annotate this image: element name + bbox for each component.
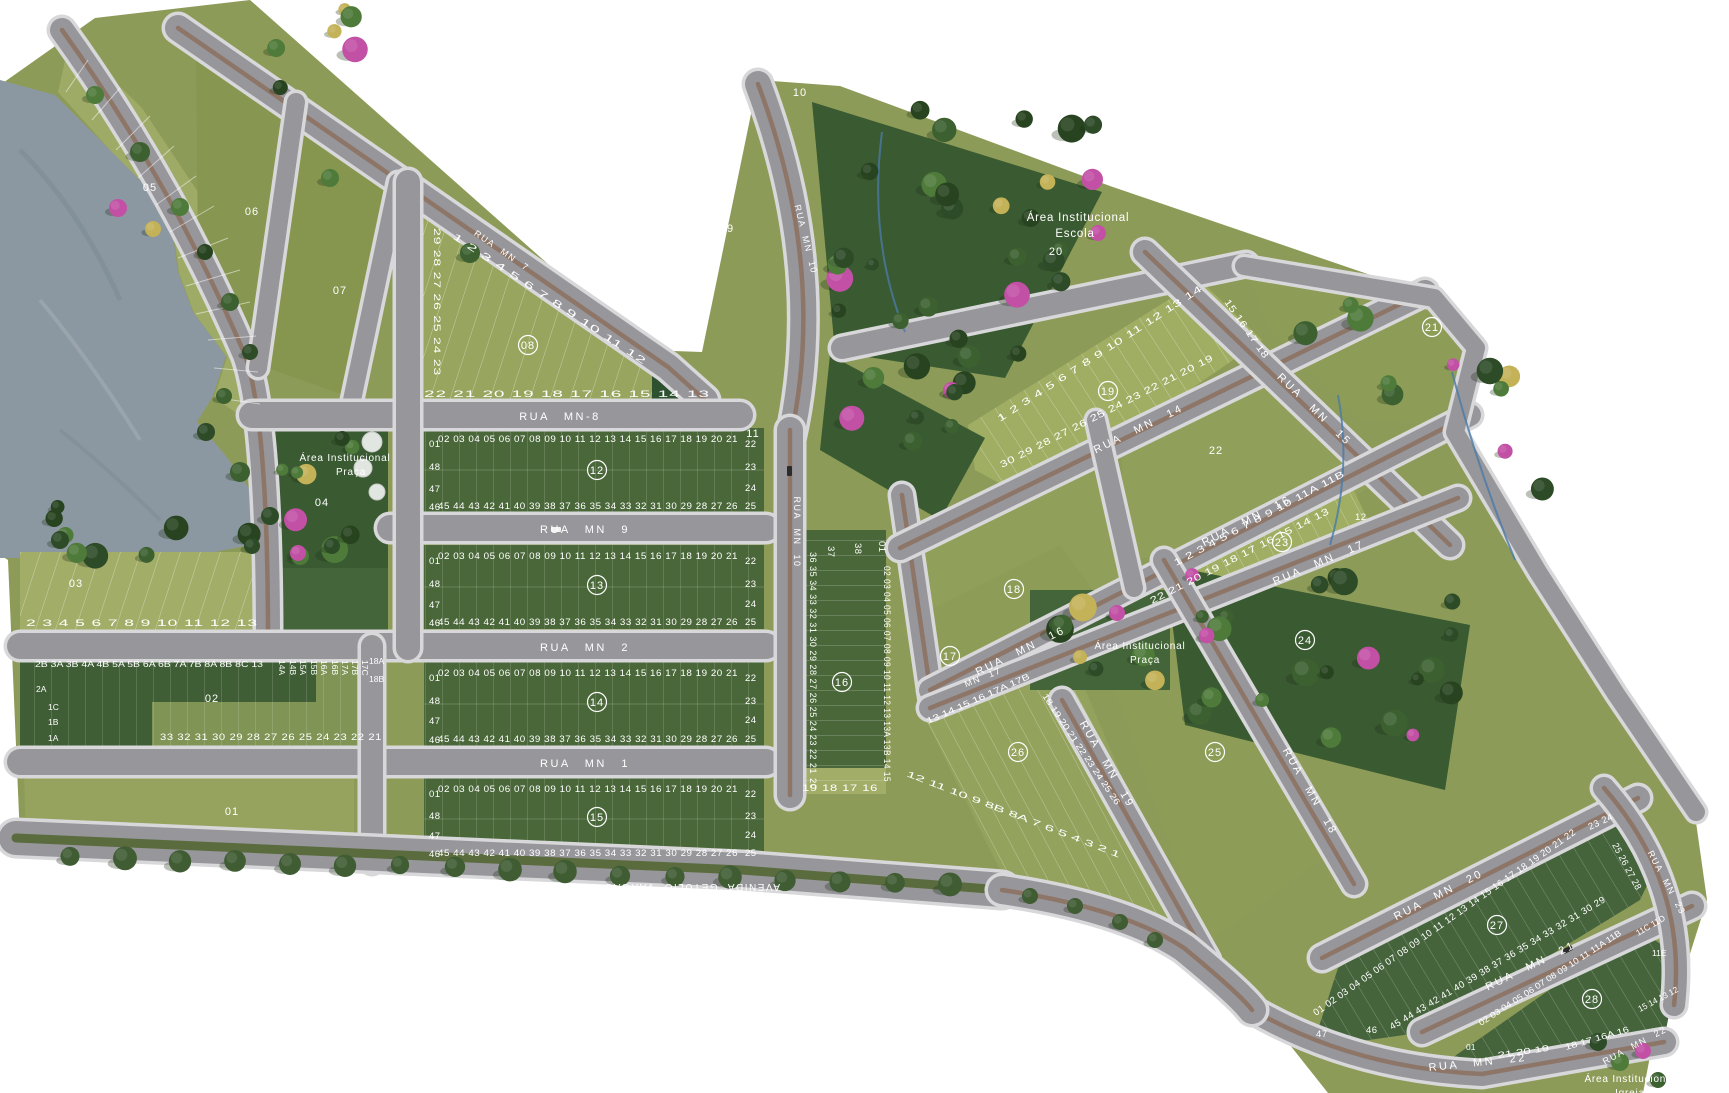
block-13-lots-bottom: 45 44 43 42 41 40 39 38 37 36 35 34 33 3… bbox=[438, 617, 738, 628]
block-12-lot-23: 23 bbox=[745, 462, 757, 473]
block-12-lot-25: 25 bbox=[745, 501, 757, 512]
block-label-10: 10 bbox=[793, 87, 807, 99]
svg-text:21: 21 bbox=[1425, 322, 1439, 334]
block-15-lot-46: 46 bbox=[429, 849, 441, 860]
block-12-lot-47: 47 bbox=[429, 484, 441, 495]
block-14-lot-24: 24 bbox=[745, 715, 757, 726]
block-12-lot-01: 01 bbox=[429, 439, 441, 450]
block-02-lot-18a: 18A bbox=[369, 656, 384, 666]
street-label-avenida-getulio-vargas: AVENIDA GETULIO VARGAS bbox=[604, 881, 780, 892]
svg-text:24: 24 bbox=[1298, 635, 1312, 647]
block-label-09: 09 bbox=[720, 223, 734, 235]
block-28-lot-01: 01 bbox=[1466, 1042, 1476, 1052]
block-label-05: 05 bbox=[143, 182, 157, 194]
block-label-03: 03 bbox=[69, 578, 83, 590]
block-02-lot-16b: 16B bbox=[330, 660, 340, 675]
block-16-lots-left: 36 35 34 33 32 31 30 29 28 27 26 25 24 2… bbox=[807, 552, 818, 774]
block-16-lots-right: 02 03 04 05 06 07 08 09 10 11 12 13 13A … bbox=[881, 566, 892, 782]
block-15-lot-47: 47 bbox=[429, 831, 441, 842]
block-02-lot-16a: 16A bbox=[319, 660, 329, 675]
block-14-lot-01: 01 bbox=[429, 673, 441, 684]
block-13-lots-top: 02 03 04 05 06 07 08 09 10 11 12 13 14 1… bbox=[438, 551, 738, 562]
block-13-lot-46: 46 bbox=[429, 618, 441, 629]
street-label-rua-mn9: RUA MN 9 bbox=[540, 524, 630, 536]
street-label-rua-mn1: RUA MN 1 bbox=[540, 758, 630, 770]
block-14-lots-bottom: 45 44 43 42 41 40 39 38 37 36 35 34 33 3… bbox=[438, 734, 738, 745]
block-14-lot-23: 23 bbox=[745, 696, 757, 707]
block-02-lot-1a: 1A bbox=[48, 733, 59, 743]
block-14-lots-top: 02 03 04 05 06 07 08 09 10 11 12 13 14 1… bbox=[438, 668, 738, 679]
block-02-lot-1c: 1C bbox=[48, 702, 59, 712]
block-28-lot-11e: 11E bbox=[1652, 948, 1667, 958]
block-27-lot-46: 46 bbox=[1366, 1025, 1378, 1036]
svg-text:17: 17 bbox=[943, 651, 957, 663]
car-icon bbox=[787, 466, 792, 476]
block-13-lot-24: 24 bbox=[745, 599, 757, 610]
label-area-institucional-praca-left-line1: Área Institucional bbox=[299, 451, 390, 464]
block-13-lot-23: 23 bbox=[745, 579, 757, 590]
block-14-lot-47: 47 bbox=[429, 716, 441, 727]
block-13-lot-22: 22 bbox=[745, 556, 757, 567]
svg-text:18: 18 bbox=[1007, 584, 1021, 596]
label-area-institucional-igreja-line2: Igreja bbox=[1615, 1088, 1645, 1093]
block-15-lot-24: 24 bbox=[745, 830, 757, 841]
svg-text:13: 13 bbox=[590, 580, 604, 592]
block-16-lots-bottom: 19 18 17 16 bbox=[802, 783, 878, 794]
block-02-lot-17b: 17B bbox=[350, 660, 360, 675]
block-02-lot-15b: 15B bbox=[309, 660, 319, 675]
street-label-avenida-frag-getulio: GETULIO VARGA bbox=[182, 881, 287, 892]
block-12-lot-24: 24 bbox=[745, 483, 757, 494]
block-12-lot-46: 46 bbox=[429, 502, 441, 513]
street-label-rua-mn2: RUA MN 2 bbox=[540, 642, 630, 654]
svg-text:14: 14 bbox=[590, 697, 604, 709]
block-23-lot-12: 12 bbox=[1355, 512, 1367, 523]
block-08-lots-bottom: 22 21 20 19 18 17 16 15 14 13 bbox=[424, 389, 710, 400]
svg-text:12: 12 bbox=[590, 465, 604, 477]
svg-text:25: 25 bbox=[1208, 747, 1222, 759]
block-label-01: 01 bbox=[225, 806, 239, 818]
site-plan-map: RUA MN 7 RUA MN-8 RUA MN 9 RUA MN 2 RUA … bbox=[0, 0, 1729, 1093]
block-16-lot-01: 01 bbox=[876, 541, 887, 553]
block-label-06: 06 bbox=[245, 206, 259, 218]
block-label-22: 22 bbox=[1209, 445, 1223, 457]
block-label-02: 02 bbox=[205, 693, 219, 705]
block-label-07: 07 bbox=[333, 285, 347, 297]
block-02-lots-top: 2B 3A 3B 4A 4B 5A 5B 6A 6B 7A 7B 8A 8B 8… bbox=[35, 659, 263, 669]
block-02-lot-2a: 2A bbox=[36, 684, 47, 694]
label-area-institucional-escola-line1: Área Institucional bbox=[1027, 211, 1130, 224]
svg-text:28: 28 bbox=[1585, 994, 1599, 1006]
block-02-lot-14a: 14A bbox=[277, 660, 287, 675]
block-02-lot-14b: 14B bbox=[288, 660, 298, 675]
block-15-lot-23: 23 bbox=[745, 811, 757, 822]
svg-text:27: 27 bbox=[1490, 920, 1504, 932]
svg-text:19: 19 bbox=[1101, 386, 1115, 398]
block-12-lot-48: 48 bbox=[429, 462, 441, 473]
label-area-institucional-praca-left-line2: Praça bbox=[336, 467, 366, 478]
block-02-lot-17a: 17A bbox=[340, 660, 350, 675]
block-03-lots: 2 3 4 5 6 7 8 9 10 11 12 13 bbox=[26, 618, 258, 629]
svg-text:15: 15 bbox=[590, 812, 604, 824]
label-area-institucional-praca-right-line2: Praça bbox=[1130, 655, 1160, 666]
svg-text:16: 16 bbox=[835, 677, 849, 689]
svg-text:26: 26 bbox=[1011, 747, 1025, 759]
svg-text:08: 08 bbox=[521, 340, 535, 352]
block-15-lot-48: 48 bbox=[429, 811, 441, 822]
block-label-20: 20 bbox=[1049, 246, 1063, 258]
block-15-lot-01: 01 bbox=[429, 789, 441, 800]
label-area-institucional-praca-right-line1: Área Institucional bbox=[1094, 639, 1185, 652]
block-15-lot-25: 25 bbox=[745, 848, 757, 859]
block-12-lot-22: 22 bbox=[745, 439, 757, 450]
block-13-lot-48: 48 bbox=[429, 579, 441, 590]
block-02-lots-bottom: 33 32 31 30 29 28 27 26 25 24 23 22 21 bbox=[160, 732, 382, 743]
street-label-rua-mn8: RUA MN-8 bbox=[519, 411, 601, 423]
block-16-lot-38: 38 bbox=[852, 543, 863, 555]
block-14-lot-22: 22 bbox=[745, 673, 757, 684]
block-14-lot-46: 46 bbox=[429, 735, 441, 746]
block-27-lot-47: 47 bbox=[1316, 1029, 1328, 1040]
block-15-lot-22: 22 bbox=[745, 789, 757, 800]
block-13-lot-47: 47 bbox=[429, 600, 441, 611]
street-label-rua-mn10-vertical: RUA MN 10 bbox=[792, 496, 802, 567]
block-16-lot-37: 37 bbox=[825, 546, 836, 558]
block-15-lots-top: 02 03 04 05 06 07 08 09 10 11 12 13 14 1… bbox=[438, 784, 738, 795]
label-area-institucional-escola-line2: Escola bbox=[1055, 228, 1094, 240]
block-02-lot-1b: 1B bbox=[48, 717, 59, 727]
block-12-lots-top: 02 03 04 05 06 07 08 09 10 11 12 13 14 1… bbox=[438, 434, 738, 445]
block-14-lot-25: 25 bbox=[745, 734, 757, 745]
block-02-lot-18b: 18B bbox=[369, 674, 384, 684]
block-12-lots-bottom: 45 44 43 42 41 40 39 38 37 36 35 34 33 3… bbox=[438, 501, 738, 512]
block-13-lot-25: 25 bbox=[745, 617, 757, 628]
block-02-lot-15a: 15A bbox=[298, 660, 308, 675]
block-label-04: 04 bbox=[315, 497, 329, 509]
block-08-lots-left: 29 28 27 26 25 24 23 bbox=[431, 228, 442, 376]
label-area-institucional-igreja-line1: Área Institucional bbox=[1584, 1072, 1675, 1085]
map-svg: RUA MN 7 RUA MN-8 RUA MN 9 RUA MN 2 RUA … bbox=[0, 0, 1729, 1093]
block-15-lots-bottom: 45 44 43 42 41 40 39 38 37 36 35 34 33 3… bbox=[438, 848, 738, 859]
block-13-lot-01: 01 bbox=[429, 556, 441, 567]
block-14-lot-48: 48 bbox=[429, 696, 441, 707]
